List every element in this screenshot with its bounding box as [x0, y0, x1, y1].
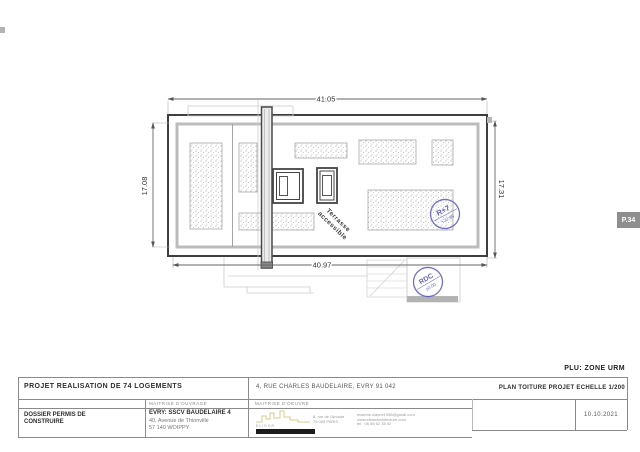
architect-logo-icon	[254, 408, 312, 424]
project-address: 4, RUE CHARLES BAUDELAIRE, EVRY 91 042	[256, 384, 396, 390]
drawing-sheet: Terrasse accessible R+7 +22.86 RDC ±0.00…	[0, 0, 640, 452]
maitrise-ouvrage-header: MAITRISE D'OUVRAGE	[149, 401, 207, 406]
joint-bar	[261, 107, 273, 268]
dossier-type: DOSSIER PERMIS DE CONSTRUIRE	[24, 412, 86, 426]
gravel-area	[190, 143, 222, 229]
dim-left: 17.08	[140, 177, 149, 196]
gravel-area	[295, 143, 347, 158]
level-stamp-rdc: RDC ±0.00	[408, 262, 448, 302]
tb-line	[18, 408, 472, 409]
drawing-date: 10.10.2021	[575, 412, 627, 418]
tb-line	[18, 377, 627, 378]
dim-right: 17.31	[497, 180, 506, 199]
plan-title: PLAN TOITURE PROJET ECHELLE 1/200	[400, 385, 625, 391]
dim-bottom: 40.97	[313, 261, 332, 270]
lower-roof-band	[407, 296, 458, 302]
tb-line	[18, 437, 472, 438]
tb-line	[627, 377, 628, 430]
gravel-area	[359, 140, 416, 164]
page-number-label: P.34	[622, 217, 636, 224]
logo-bar	[256, 429, 315, 434]
tb-line	[145, 399, 146, 437]
corner-detail	[487, 117, 492, 123]
architect-contact: maxime.clayne1958@gmail.com www.elidorar…	[357, 413, 415, 427]
scan-mark	[0, 27, 5, 33]
maitrise-oeuvre-header: MAITRISE D'OEUVRE	[255, 401, 309, 406]
page-number-tab[interactable]: P.34	[617, 212, 640, 228]
project-title: PROJET REALISATION DE 74 LOGEMENTS	[24, 383, 182, 390]
ouvrage-address-2: 57 140 WOIPPY	[149, 425, 189, 431]
tb-line	[18, 377, 19, 437]
ouvrage-name: EVRY: SSCV BAUDELAIRE 4	[149, 410, 231, 416]
ouvrage-address-1: 40, Avenue de Thionville	[149, 418, 209, 424]
architect-address: 8, rue de l'Arcade 75 009 PARIS	[313, 415, 344, 424]
dim-top: 41.05	[317, 95, 336, 104]
architect-logo-text: ELIDOR	[256, 424, 275, 428]
gravel-area	[432, 140, 453, 165]
tb-line	[472, 430, 627, 431]
plu-zone-note: PLU: ZONE URM	[445, 365, 625, 372]
tb-line	[248, 377, 249, 437]
tb-line	[18, 399, 627, 400]
tb-line	[472, 399, 473, 430]
gravel-area	[239, 213, 314, 230]
gravel-area	[239, 143, 257, 192]
